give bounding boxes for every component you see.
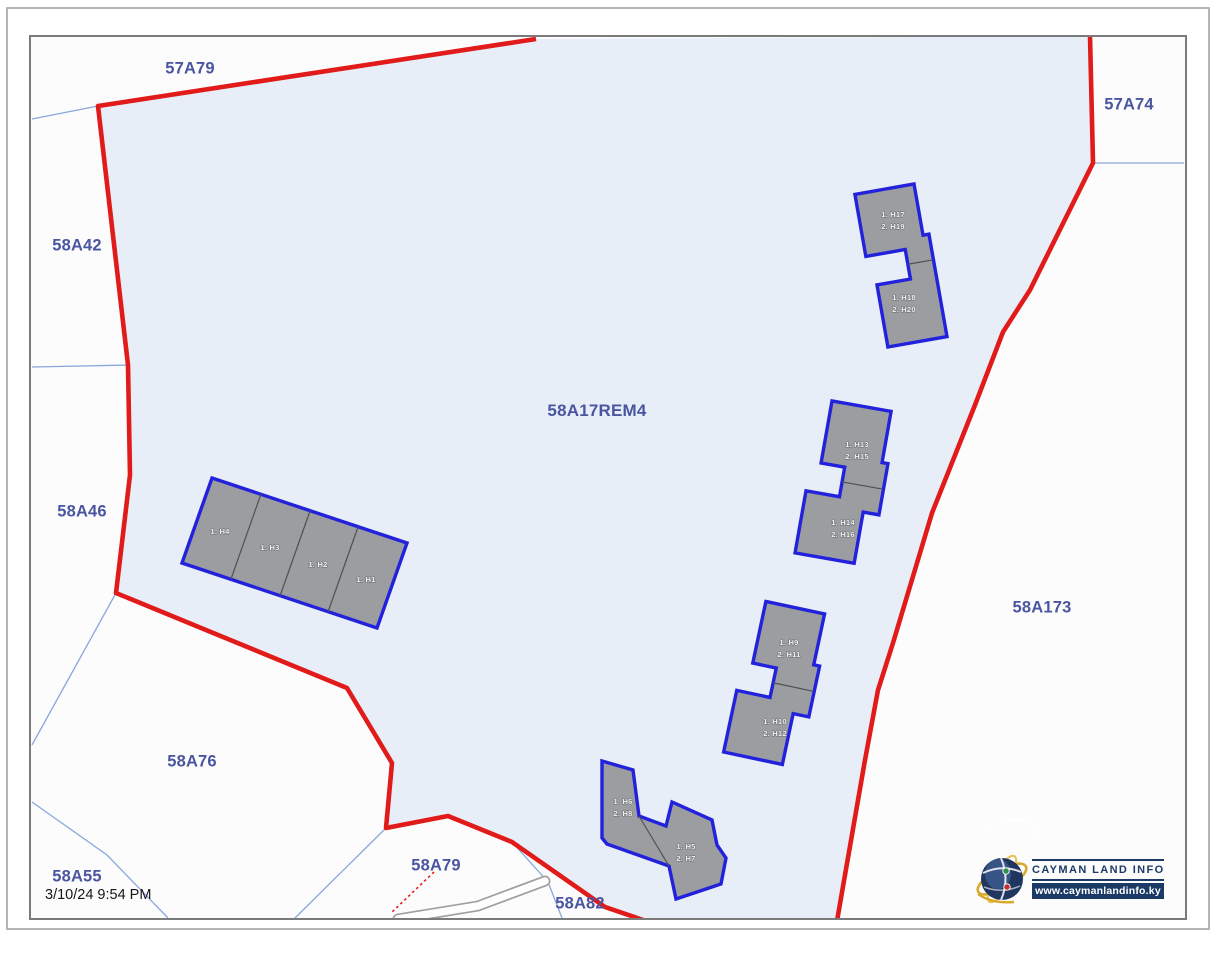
logo-url: www.caymanlandinfo.ky [1035, 885, 1161, 897]
unit-label: 1. H3 [260, 543, 279, 552]
parcel-label-58A55[interactable]: 58A55 [52, 868, 102, 887]
unit-label: 2. H15 [845, 452, 869, 461]
logo-rule-bottom [1032, 879, 1164, 881]
unit-label: 2. H7 [676, 854, 695, 863]
logo-title: CAYMAN LAND INFO [1032, 863, 1164, 877]
parcel-label-58A79[interactable]: 58A79 [411, 857, 461, 876]
unit-label: 1. H6 [613, 797, 632, 806]
parcel-label-58A46[interactable]: 58A46 [57, 503, 107, 522]
parcel-map[interactable]: 1. H172. H191. H182. H201. H132. H151. H… [0, 0, 1216, 954]
parcel-label-58A17REM4[interactable]: 58A17REM4 [547, 401, 646, 421]
timestamp: 3/10/24 9:54 PM [45, 887, 151, 903]
unit-label: 2. H12 [763, 729, 787, 738]
unit-label: 1. H9 [779, 638, 798, 647]
unit-label: 1. H18 [892, 293, 916, 302]
parcel-label-58A173[interactable]: 58A173 [1013, 599, 1072, 618]
unit-label: 2. H19 [881, 222, 905, 231]
unit-label: 2. H11 [777, 650, 801, 659]
unit-label: 1. H1 [356, 575, 376, 584]
unit-label: 1. H2 [308, 560, 327, 569]
logo-url-bar: www.caymanlandinfo.ky [1032, 883, 1164, 899]
globe-icon [974, 842, 1030, 916]
unit-label: 1. H17 [881, 210, 905, 219]
parcel-label-58A76[interactable]: 58A76 [167, 753, 217, 772]
parcel-label-57A74[interactable]: 57A74 [1104, 96, 1154, 115]
parcel-label-58A42[interactable]: 58A42 [52, 237, 102, 256]
unit-label: 2. H20 [892, 305, 916, 314]
unit-label: 1. H5 [676, 842, 696, 851]
unit-label: 1. H13 [845, 440, 869, 449]
unit-label: 2. H16 [831, 530, 855, 539]
parcel-label-57A79[interactable]: 57A79 [165, 60, 215, 79]
unit-label: 2. H8 [613, 809, 632, 818]
parcel-label-58A82[interactable]: 58A82 [555, 895, 605, 914]
unit-label: 1. H14 [831, 518, 855, 527]
map-viewer-page: 1. H172. H191. H182. H201. H132. H151. H… [0, 0, 1216, 954]
unit-label: 1. H10 [763, 717, 787, 726]
logo-rule-top [1032, 859, 1164, 861]
cayman-land-info-logo: CAYMAN LAND INFO www.caymanlandinfo.ky [974, 842, 1164, 916]
unit-label: 1. H4 [210, 527, 230, 536]
